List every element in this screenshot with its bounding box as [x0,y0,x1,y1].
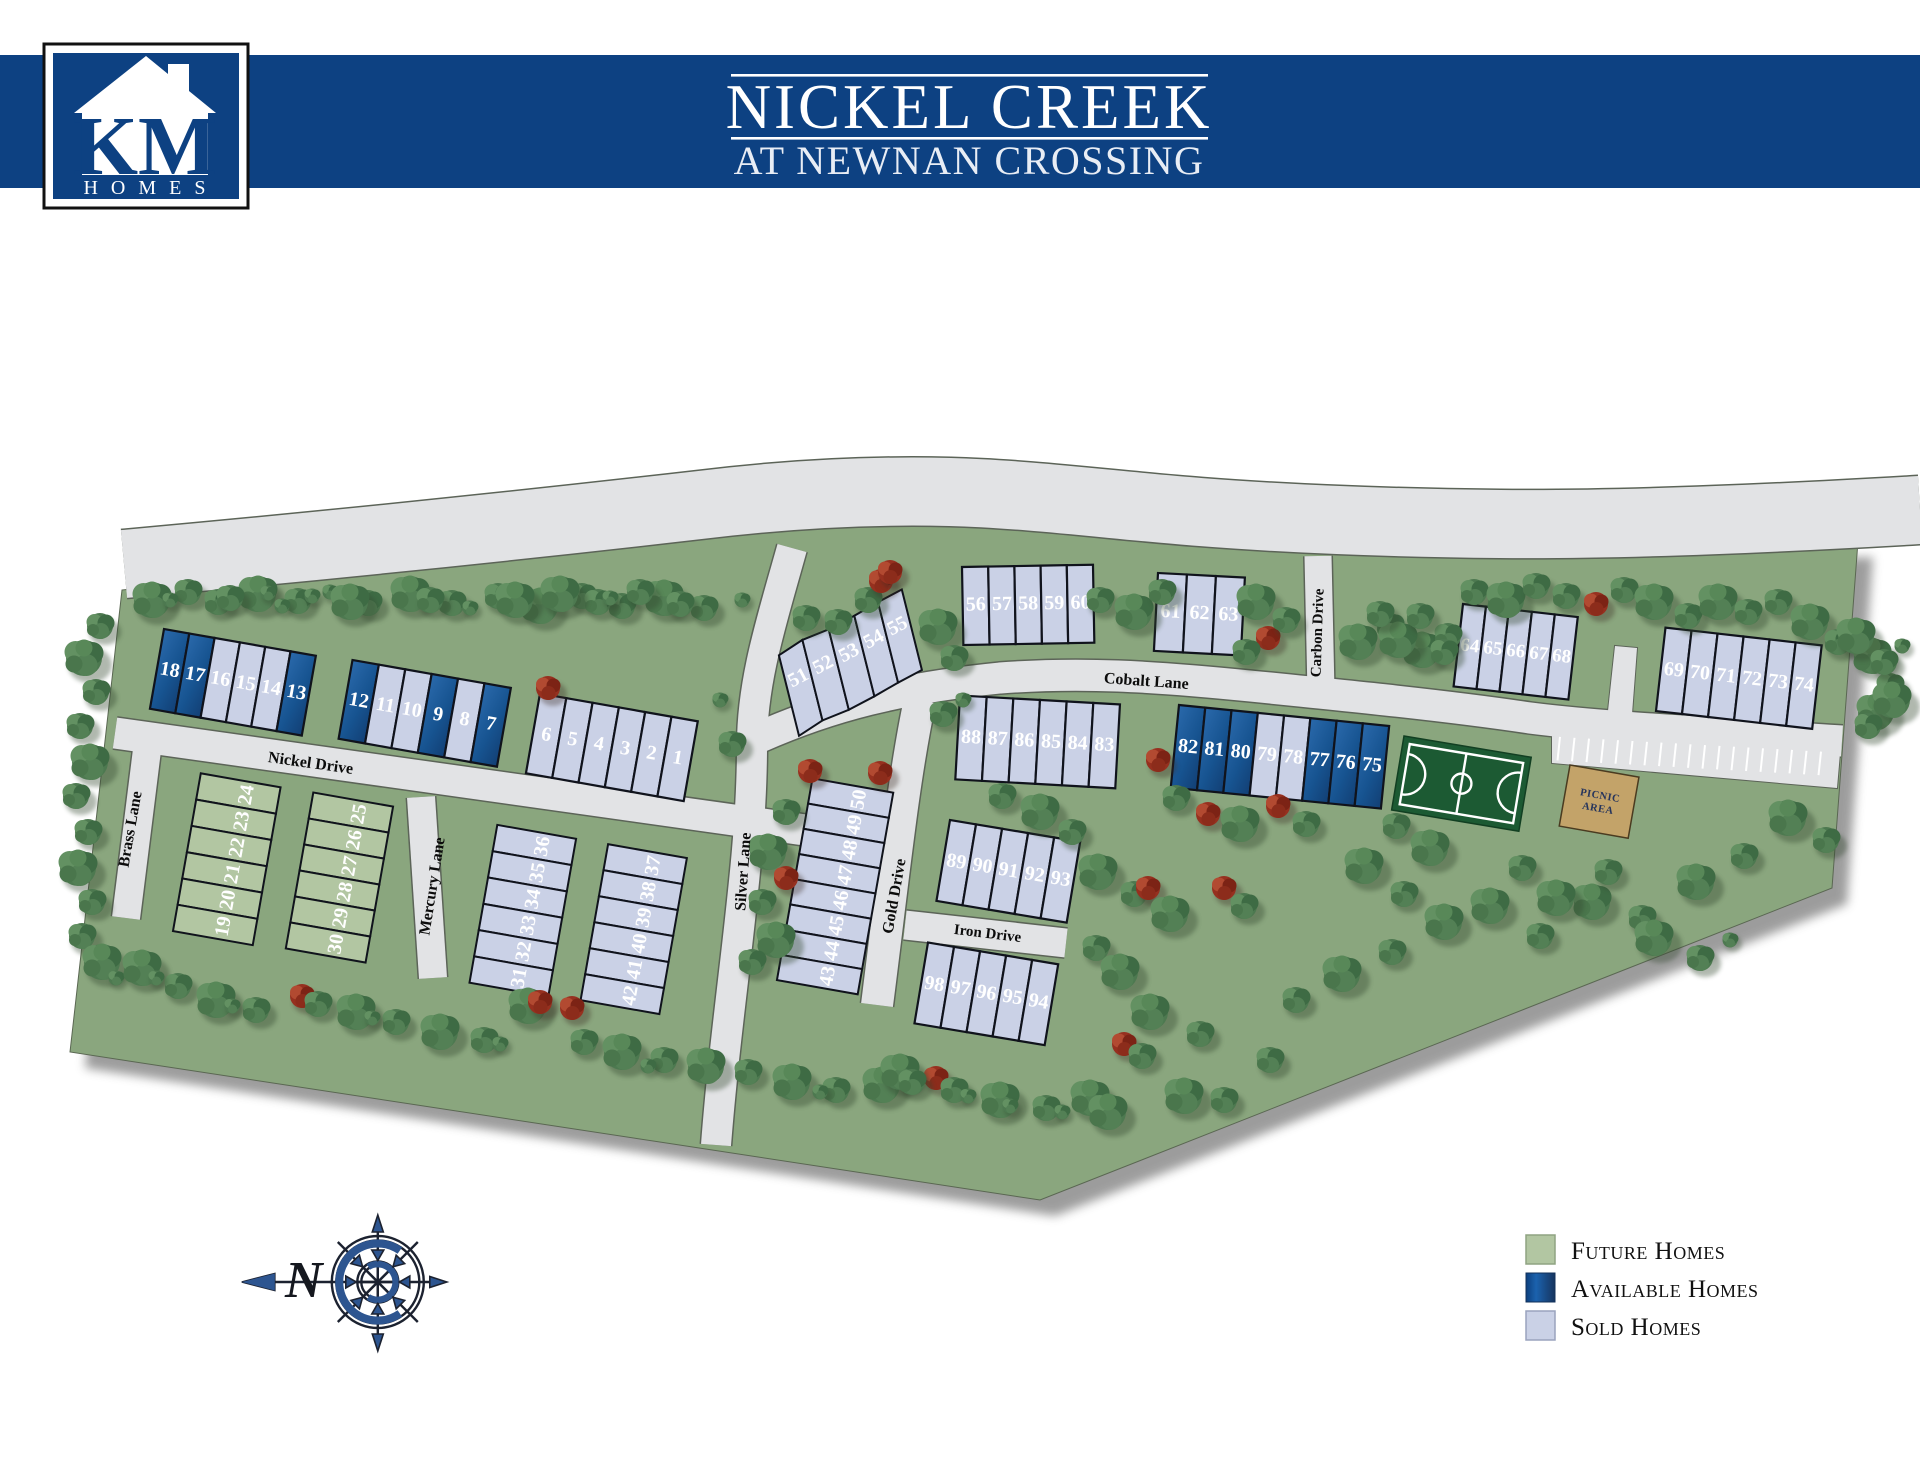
svg-text:85: 85 [1040,730,1061,753]
svg-text:41: 41 [622,958,647,982]
svg-text:73: 73 [1767,670,1789,694]
svg-text:67: 67 [1528,642,1550,665]
svg-text:31: 31 [507,966,532,990]
svg-text:94: 94 [1027,989,1050,1014]
svg-text:62: 62 [1189,601,1210,624]
svg-text:66: 66 [1505,640,1526,663]
svg-text:29: 29 [328,906,353,930]
svg-text:45: 45 [824,914,849,938]
svg-text:72: 72 [1741,667,1763,691]
svg-text:21: 21 [220,862,245,886]
svg-text:Sold Homes: Sold Homes [1571,1314,1701,1341]
svg-text:HOMES: HOMES [83,177,218,199]
svg-text:70: 70 [1689,661,1711,685]
svg-text:30: 30 [323,932,348,956]
svg-text:65: 65 [1482,637,1503,660]
svg-text:57: 57 [992,593,1012,615]
svg-text:37: 37 [641,854,666,878]
svg-text:71: 71 [1715,664,1737,688]
svg-text:86: 86 [1014,729,1035,752]
svg-text:12: 12 [347,688,371,713]
svg-text:81: 81 [1203,737,1225,761]
svg-text:Future Homes: Future Homes [1571,1238,1725,1265]
svg-text:87: 87 [987,727,1008,750]
svg-text:33: 33 [516,913,541,937]
svg-text:59: 59 [1044,592,1064,614]
svg-text:98: 98 [923,972,946,997]
svg-text:69: 69 [1663,658,1685,682]
svg-text:83: 83 [1094,733,1115,756]
svg-text:56: 56 [966,593,986,615]
svg-text:47: 47 [833,863,858,887]
svg-text:43: 43 [815,964,840,988]
svg-text:95: 95 [1001,985,1024,1010]
svg-text:48: 48 [837,838,862,862]
svg-text:49: 49 [842,813,867,837]
svg-text:18: 18 [158,657,182,682]
svg-text:80: 80 [1230,740,1252,764]
svg-text:79: 79 [1256,742,1278,766]
svg-text:96: 96 [975,980,998,1005]
svg-text:28: 28 [333,880,358,904]
svg-text:93: 93 [1049,866,1072,891]
svg-text:17: 17 [183,662,207,687]
svg-text:26: 26 [342,828,367,852]
svg-text:23: 23 [229,809,254,833]
svg-text:91: 91 [997,858,1020,883]
svg-text:84: 84 [1067,732,1088,755]
svg-text:36: 36 [530,835,555,859]
svg-text:40: 40 [627,932,652,956]
svg-text:58: 58 [1018,592,1038,614]
svg-text:16: 16 [209,666,233,691]
svg-text:NICKEL CREEK: NICKEL CREEK [726,72,1213,142]
svg-text:22: 22 [224,836,249,860]
svg-text:63: 63 [1218,603,1239,626]
svg-text:27: 27 [337,854,362,878]
svg-text:42: 42 [618,984,643,1008]
svg-text:88: 88 [960,726,981,749]
svg-text:13: 13 [285,680,309,705]
svg-text:90: 90 [971,853,994,878]
svg-text:19: 19 [211,915,236,939]
svg-text:92: 92 [1023,862,1046,887]
svg-text:20: 20 [215,888,240,912]
svg-text:50: 50 [846,788,871,812]
svg-text:34: 34 [520,887,545,911]
svg-text:75: 75 [1361,753,1383,777]
svg-text:74: 74 [1793,673,1815,697]
svg-text:82: 82 [1177,735,1199,759]
svg-text:15: 15 [234,671,258,696]
svg-text:35: 35 [525,861,550,885]
svg-text:24: 24 [234,783,259,807]
svg-text:Available Homes: Available Homes [1571,1276,1759,1303]
svg-text:46: 46 [828,889,853,913]
svg-text:10: 10 [400,697,424,722]
svg-text:89: 89 [945,849,968,874]
svg-text:14: 14 [259,675,283,700]
svg-text:78: 78 [1282,745,1304,769]
svg-text:39: 39 [631,906,656,930]
svg-text:44: 44 [819,939,844,963]
svg-text:N: N [284,1252,325,1309]
svg-text:77: 77 [1308,748,1330,772]
svg-text:38: 38 [636,880,661,904]
svg-text:11: 11 [374,693,396,718]
svg-text:AT NEWNAN CROSSING: AT NEWNAN CROSSING [734,138,1205,183]
svg-text:Carbon Drive: Carbon Drive [1308,588,1327,678]
svg-text:76: 76 [1335,750,1357,774]
svg-text:32: 32 [511,940,536,964]
svg-text:68: 68 [1551,645,1572,668]
svg-text:97: 97 [949,976,972,1001]
svg-text:25: 25 [346,802,371,826]
